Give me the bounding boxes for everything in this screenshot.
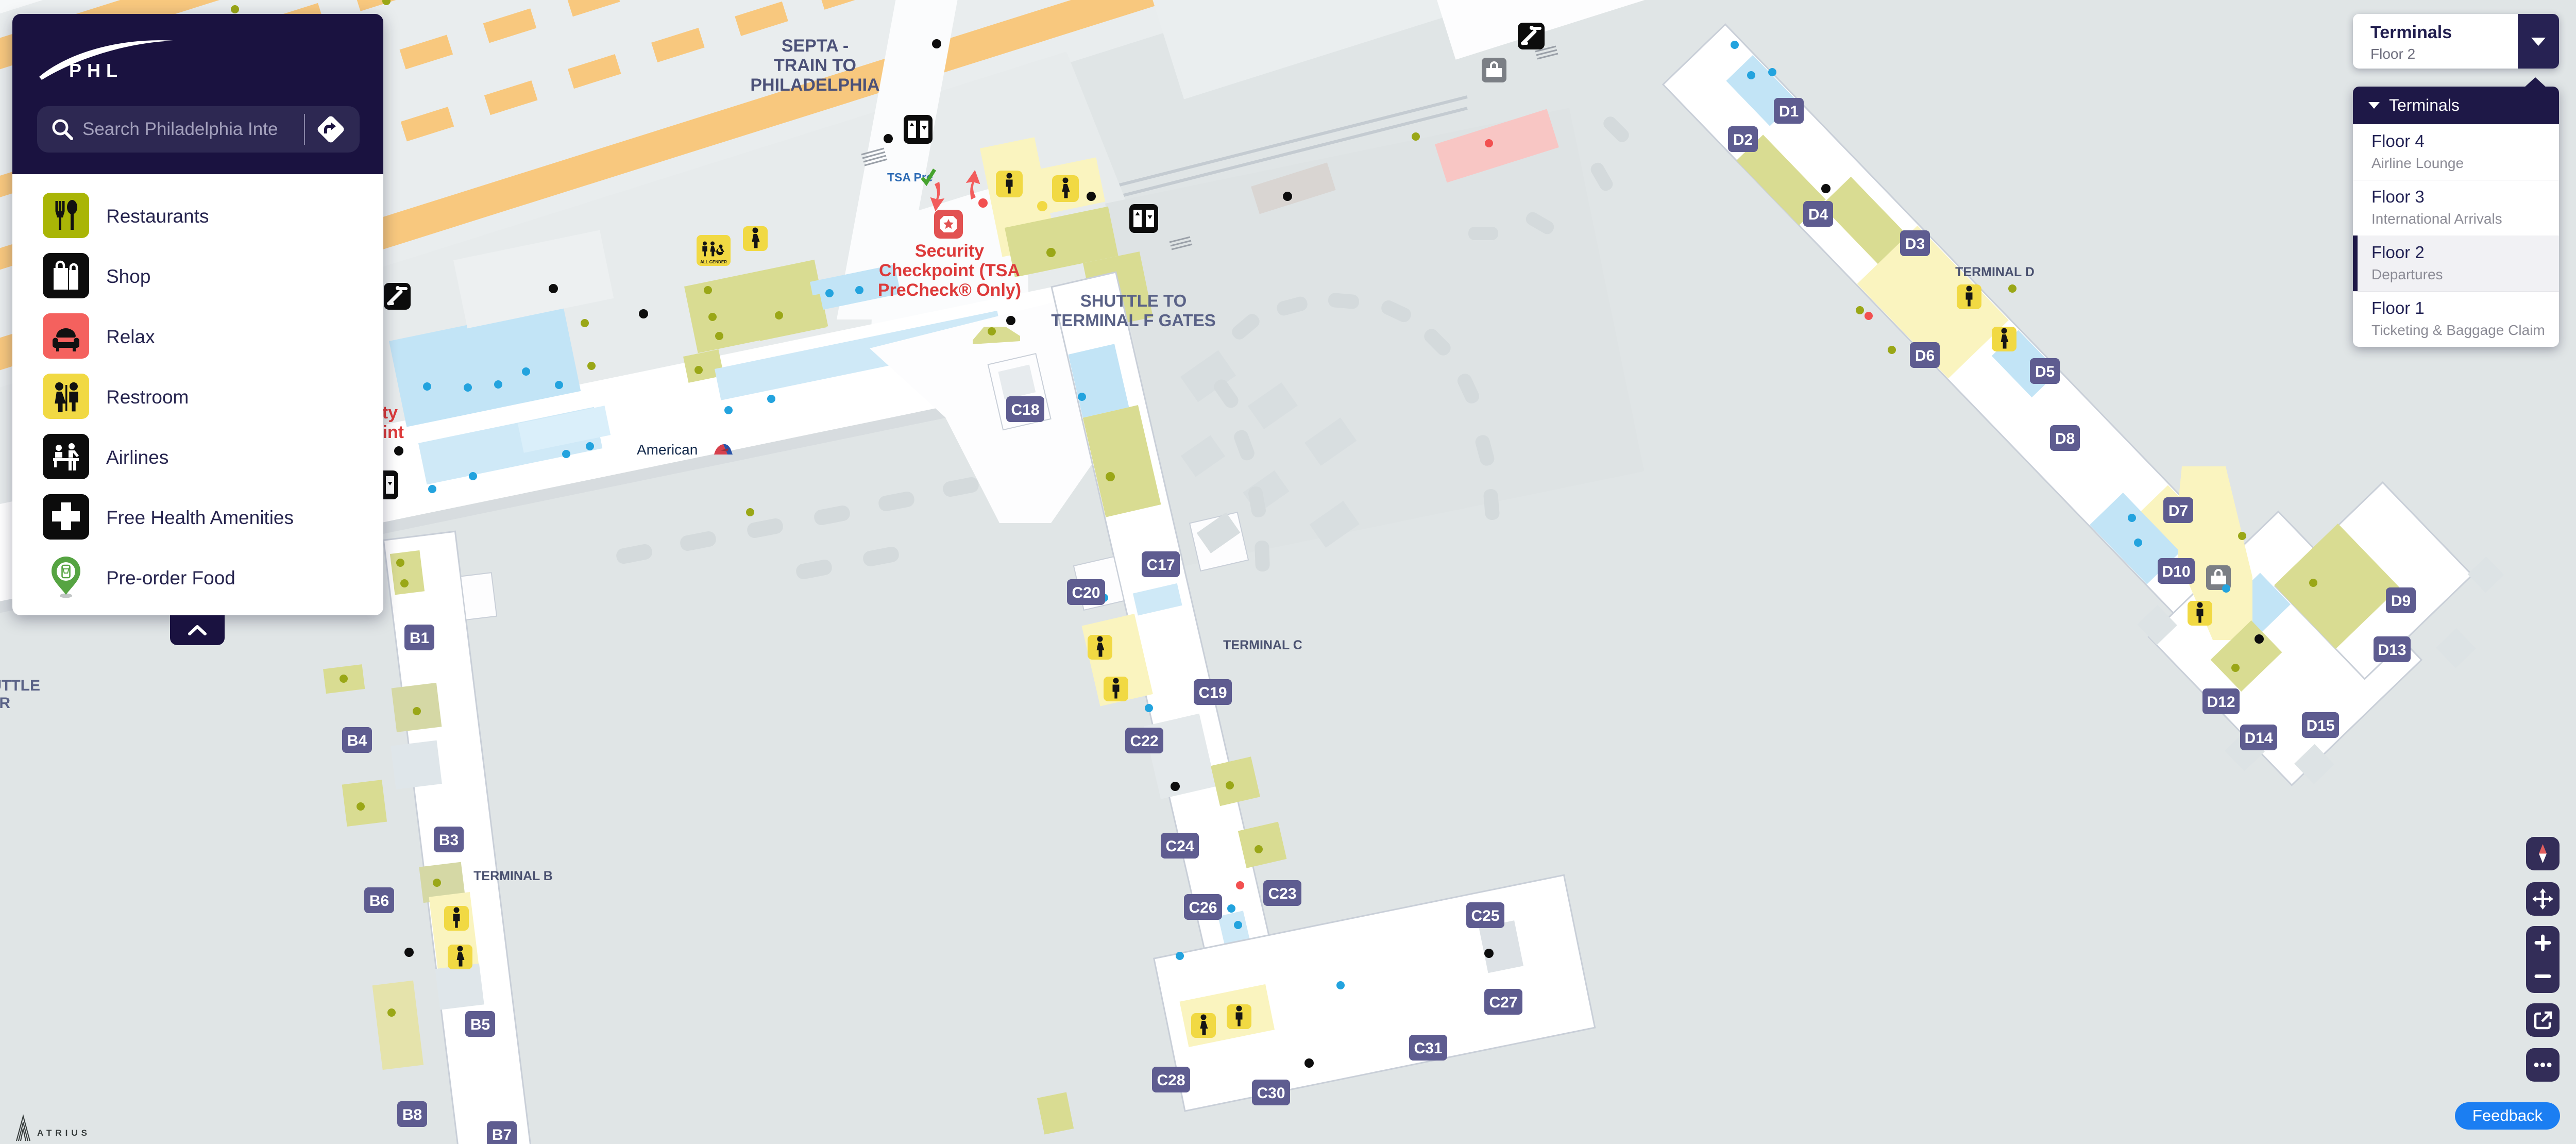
svg-text:American: American — [637, 442, 698, 458]
svg-text:SHUTTLE TO: SHUTTLE TO — [1080, 291, 1187, 310]
svg-text:B1: B1 — [410, 630, 429, 647]
svg-text:TERMINAL B: TERMINAL B — [473, 869, 553, 883]
svg-text:B8: B8 — [402, 1106, 422, 1123]
svg-text:C17: C17 — [1146, 557, 1175, 574]
svg-text:D9: D9 — [2391, 593, 2411, 610]
svg-text:TERMINAL C: TERMINAL C — [1223, 638, 1302, 652]
svg-text:TERMINAL F GATES: TERMINAL F GATES — [1051, 311, 1216, 330]
svg-text:TERMINAL D: TERMINAL D — [1955, 265, 2035, 279]
svg-text:C25: C25 — [1471, 907, 1499, 924]
svg-text:PreCheck® Only): PreCheck® Only) — [878, 280, 1021, 300]
svg-text:D5: D5 — [2035, 363, 2055, 380]
svg-text:SHUTTLE: SHUTTLE — [0, 677, 40, 694]
svg-text:D10: D10 — [2162, 563, 2190, 580]
svg-text:Checkpoint (TSA: Checkpoint (TSA — [879, 261, 1020, 280]
svg-text:D6: D6 — [1915, 347, 1935, 364]
svg-text:C28: C28 — [1157, 1072, 1185, 1089]
svg-text:D8: D8 — [2055, 430, 2075, 447]
svg-text:C22: C22 — [1130, 733, 1158, 750]
svg-text:C20: C20 — [1072, 584, 1100, 601]
svg-text:D1: D1 — [1779, 103, 1799, 120]
svg-text:C23: C23 — [1268, 885, 1296, 902]
svg-text:D15: D15 — [2306, 717, 2334, 734]
svg-text:C26: C26 — [1189, 899, 1217, 916]
svg-text:ATRIUS: ATRIUS — [37, 1128, 91, 1138]
svg-text:C30: C30 — [1257, 1085, 1285, 1102]
svg-text:TRAIN TO: TRAIN TO — [774, 56, 856, 75]
svg-text:C19: C19 — [1198, 684, 1227, 701]
svg-text:D7: D7 — [2168, 502, 2188, 519]
svg-text:SEPTA -: SEPTA - — [782, 36, 849, 56]
svg-text:D3: D3 — [1905, 235, 1925, 253]
svg-text:ALL GENDER: ALL GENDER — [700, 260, 727, 264]
svg-text:Security: Security — [915, 241, 984, 261]
svg-text:B3: B3 — [439, 832, 459, 849]
svg-text:B4: B4 — [347, 732, 367, 749]
svg-text:D4: D4 — [1808, 206, 1828, 223]
svg-text:B5: B5 — [470, 1016, 490, 1033]
svg-text:C24: C24 — [1165, 838, 1194, 855]
svg-text:B7: B7 — [492, 1126, 512, 1143]
svg-text:D13: D13 — [2378, 642, 2406, 659]
svg-text:B6: B6 — [369, 893, 389, 910]
svg-text:D2: D2 — [1733, 131, 1753, 148]
svg-text:PHILADELPHIA: PHILADELPHIA — [750, 75, 879, 95]
svg-text:C31: C31 — [1414, 1040, 1442, 1057]
svg-text:D14: D14 — [2244, 730, 2273, 747]
svg-text:C27: C27 — [1489, 994, 1517, 1011]
svg-text:D12: D12 — [2207, 694, 2235, 711]
svg-text:TR: TR — [0, 695, 10, 712]
svg-text:C18: C18 — [1011, 401, 1039, 418]
svg-text:PHL: PHL — [69, 60, 123, 81]
